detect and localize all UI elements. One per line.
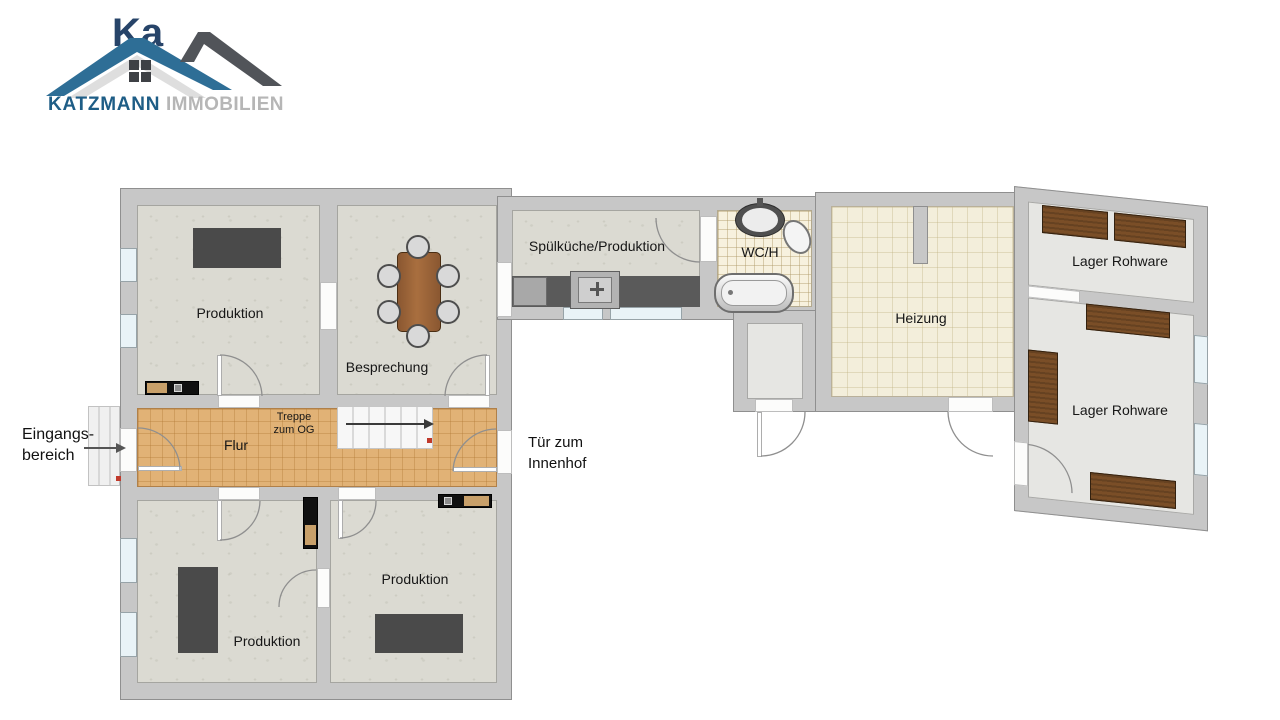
door-opening-kitchen-wc: [700, 216, 717, 262]
faucet-icon: [596, 282, 599, 296]
window-besprechung-east: [497, 262, 512, 317]
logo-suffix-text: IMMOBILIEN: [166, 94, 284, 115]
room-label-lager-top: Lager Rohware: [1072, 253, 1168, 269]
courtyard-door-label: Tür zum Innenhof: [528, 432, 586, 474]
room-floor-vestibule: [747, 323, 803, 399]
room-floor-produktion-br: [330, 500, 497, 683]
work-table: [193, 228, 281, 268]
door-opening-besprechung: [448, 395, 490, 408]
wing-door-arc: [1014, 186, 1208, 531]
room-label-lager-bottom: Lager Rohware: [1072, 402, 1168, 418]
washbasin-bowl: [742, 208, 778, 232]
room-label-flur: Flur: [224, 437, 248, 453]
window: [120, 612, 137, 657]
room-floor-flur: [137, 408, 497, 487]
room-label-spuelkueche: Spülküche/Produktion: [529, 238, 665, 254]
courtyard-door-label-line1: Tür zum: [528, 432, 586, 453]
stairs-label-line2: zum OG: [274, 424, 315, 437]
entrance-label-line1: Eingangs-: [22, 424, 94, 445]
door-leaf: [338, 500, 343, 539]
window: [120, 248, 137, 282]
room-floor-produktion-bl: [137, 500, 317, 683]
chair: [406, 235, 430, 259]
fixture-sink: [174, 384, 182, 392]
kitchen-cabinet: [513, 277, 547, 306]
fixture-board: [305, 525, 316, 545]
stairs-label: Treppe zum OG: [274, 411, 315, 437]
window-kitchen: [610, 307, 682, 320]
room-label-produktion-tl: Produktion: [197, 305, 264, 321]
door-leaf: [453, 467, 497, 472]
room-label-produktion-br: Produktion: [382, 571, 449, 587]
door-leaf: [757, 412, 762, 457]
room-label-besprechung: Besprechung: [346, 359, 429, 375]
stairs-label-line1: Treppe: [274, 411, 315, 424]
stairs-to-upper-floor: [337, 406, 433, 449]
door-opening-bl-br: [317, 568, 330, 608]
fixture-board: [147, 383, 167, 393]
meeting-table: [397, 252, 441, 332]
wing-lager: [1014, 186, 1208, 531]
room-label-wc: WC/H: [741, 244, 778, 260]
chair: [436, 264, 460, 288]
wall-stub-heizung: [913, 206, 928, 264]
entrance-label: Eingangs- bereich: [22, 424, 94, 466]
door-leaf: [485, 355, 490, 396]
work-table: [178, 567, 218, 653]
door-opening-produktion-bl: [218, 487, 260, 500]
door-leaf: [217, 500, 222, 541]
work-table: [375, 614, 463, 653]
washbasin-tap-icon: [757, 198, 763, 206]
door-opening-produktion-besprechung: [320, 282, 337, 330]
room-label-produktion-bl: Produktion: [234, 633, 301, 649]
company-logo: Ka KATZMANN IMMOBILIEN: [8, 0, 308, 125]
fixture-sink: [444, 497, 452, 505]
logo-name-text: KATZMANN: [48, 94, 160, 115]
chair: [377, 300, 401, 324]
door-opening-entrance: [120, 428, 137, 472]
chair: [436, 300, 460, 324]
floor-plan-page: Ka KATZMANN IMMOBILIEN: [0, 0, 1280, 720]
door-opening-innenhof: [497, 430, 512, 474]
window: [120, 538, 137, 583]
door-opening-vestibule: [755, 399, 793, 412]
chair: [406, 324, 430, 348]
bathtub-drain-icon: [728, 290, 733, 295]
room-label-heizung: Heizung: [895, 310, 946, 326]
chair: [377, 264, 401, 288]
entrance-label-line2: bereich: [22, 445, 94, 466]
fixture-board: [464, 496, 489, 506]
door-opening-produktion-br: [338, 487, 376, 500]
window: [120, 314, 137, 348]
door-opening-produktion-tl: [218, 395, 260, 408]
courtyard-door-label-line2: Innenhof: [528, 453, 586, 474]
door-leaf: [138, 466, 182, 471]
door-leaf: [217, 355, 222, 396]
door-opening-heizung: [948, 397, 993, 412]
